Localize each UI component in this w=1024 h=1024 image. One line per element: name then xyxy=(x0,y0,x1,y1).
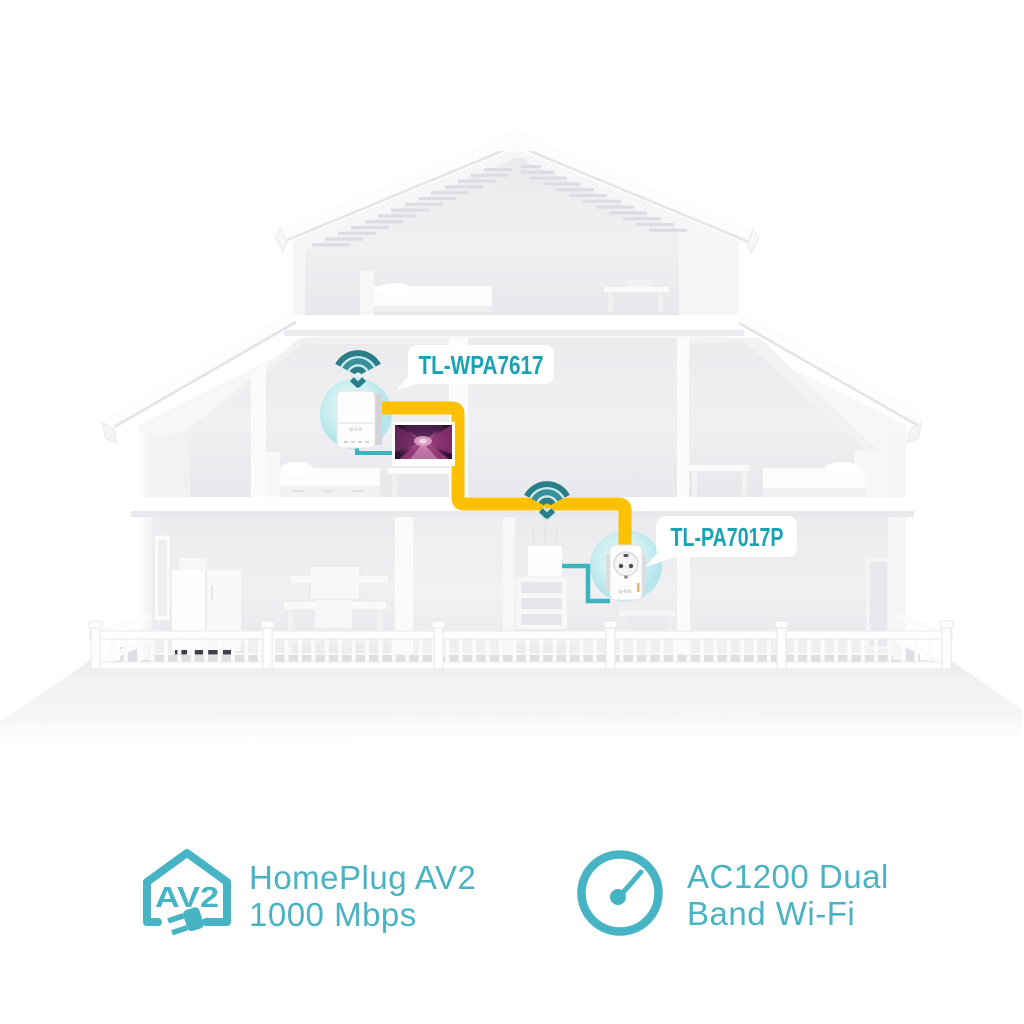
svg-text:tp-link: tp-link xyxy=(349,427,363,433)
svg-text:tp-link: tp-link xyxy=(618,589,632,595)
svg-text:HomePlug AV2: HomePlug AV2 xyxy=(249,859,476,896)
svg-text:TL-WPA7617: TL-WPA7617 xyxy=(419,350,544,380)
svg-text:AV2: AV2 xyxy=(155,882,219,914)
svg-text:Band Wi-Fi: Band Wi-Fi xyxy=(687,895,855,932)
svg-text:AC1200 Dual: AC1200 Dual xyxy=(687,858,889,895)
svg-text:1000 Mbps: 1000 Mbps xyxy=(249,896,417,933)
svg-text:TL-PA7017P: TL-PA7017P xyxy=(671,522,784,552)
